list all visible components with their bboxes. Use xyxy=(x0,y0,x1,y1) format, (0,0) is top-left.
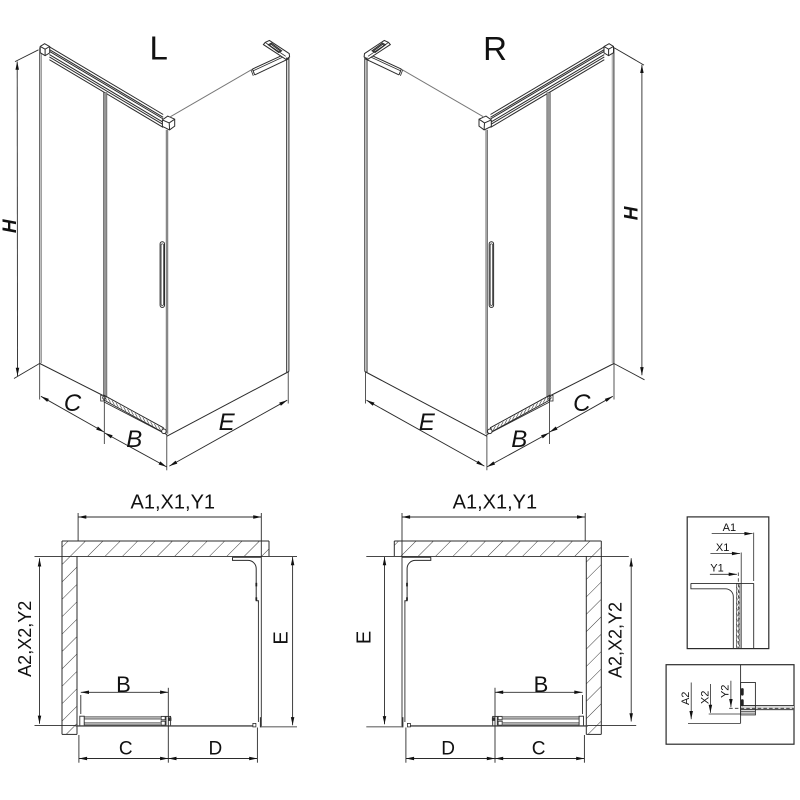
svg-text:C: C xyxy=(573,390,591,417)
svg-text:E: E xyxy=(353,631,375,644)
svg-text:A1,X1,Y1: A1,X1,Y1 xyxy=(131,491,216,513)
svg-text:A1: A1 xyxy=(723,522,736,534)
svg-text:E: E xyxy=(419,409,436,436)
svg-text:X2: X2 xyxy=(699,691,711,704)
svg-text:C: C xyxy=(532,739,546,760)
svg-text:Y1: Y1 xyxy=(710,563,723,575)
svg-text:E: E xyxy=(219,409,236,436)
svg-text:B: B xyxy=(534,672,549,697)
svg-text:C: C xyxy=(119,739,133,760)
svg-text:E: E xyxy=(270,631,292,644)
svg-text:A2,X2,Y2: A2,X2,Y2 xyxy=(606,602,626,678)
svg-text:B: B xyxy=(511,426,527,453)
svg-text:L: L xyxy=(150,30,168,67)
svg-text:H: H xyxy=(621,205,642,220)
svg-text:D: D xyxy=(209,739,223,760)
svg-text:B: B xyxy=(126,426,142,453)
svg-text:R: R xyxy=(483,30,507,67)
svg-text:A2: A2 xyxy=(680,692,692,705)
svg-text:X1: X1 xyxy=(716,542,729,554)
svg-text:A2,X2,Y2: A2,X2,Y2 xyxy=(15,601,35,677)
svg-text:H: H xyxy=(0,218,21,233)
svg-text:Y2: Y2 xyxy=(720,685,732,698)
svg-text:A1,X1,Y1: A1,X1,Y1 xyxy=(453,491,538,513)
svg-text:B: B xyxy=(116,672,131,697)
svg-text:C: C xyxy=(64,390,82,417)
svg-text:D: D xyxy=(441,739,455,760)
